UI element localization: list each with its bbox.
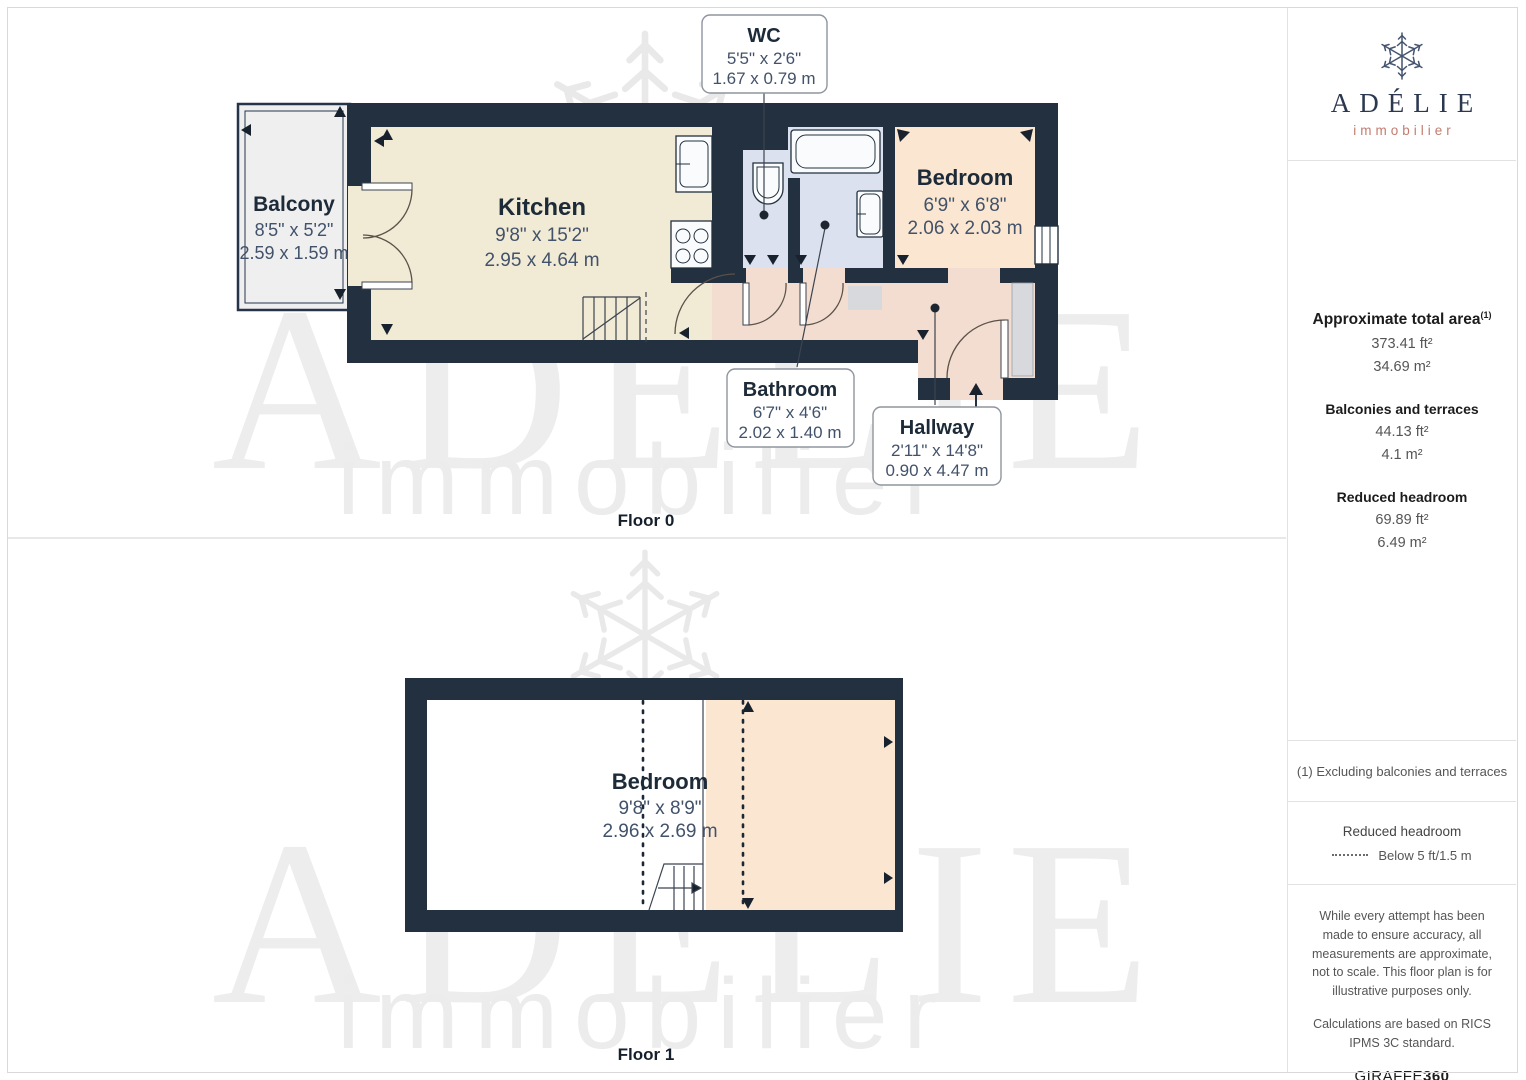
room-metric: 2.02 x 1.40 m xyxy=(738,423,841,442)
room-metric: 2.59 x 1.59 m xyxy=(239,243,348,263)
legend-item: Below 5 ft/1.5 m xyxy=(1378,848,1471,863)
room-metric: 2.06 x 2.03 m xyxy=(907,218,1022,239)
legend-title: Reduced headroom xyxy=(1343,824,1462,839)
bathroom-sink-icon xyxy=(857,191,883,237)
footnote-marker: (1) xyxy=(1480,310,1491,320)
toilet-icon xyxy=(753,163,783,204)
bedroom0-label: Bedroom 6'9" x 6'8" 2.06 x 2.03 m xyxy=(907,165,1022,239)
reduced-headroom-ft: 69.89 ft² xyxy=(1337,512,1468,528)
balconies-ft: 44.13 ft² xyxy=(1325,424,1478,440)
room-imperial: 6'9" x 6'8" xyxy=(923,195,1006,216)
room-imperial: 8'5" x 5'2" xyxy=(255,220,334,240)
disclaimer-text-1: While every attempt has been made to ens… xyxy=(1304,907,1500,1001)
kitchen-sink-icon xyxy=(676,136,712,192)
room-imperial: 5'5" x 2'6" xyxy=(727,49,801,68)
room-name: WC xyxy=(747,25,780,47)
bathtub-icon xyxy=(791,130,880,173)
balconies-title: Balconies and terraces xyxy=(1325,401,1478,417)
kitchen-label: Kitchen 9'8" x 15'2" 2.95 x 4.64 m xyxy=(484,194,599,271)
room-bedroom1-floor xyxy=(706,700,895,910)
footnote: (1) Excluding balconies and terraces xyxy=(1288,740,1516,801)
dashed-line-sample xyxy=(1332,854,1368,856)
floorplan-page: ADÉLIE immobilier ADÉLIE immobilier xyxy=(0,0,1526,1080)
room-metric: 0.90 x 4.47 m xyxy=(885,461,988,480)
disclaimer: While every attempt has been made to ens… xyxy=(1288,884,1516,1072)
brand-tagline: immobilier xyxy=(1349,123,1455,138)
room-name: Bedroom xyxy=(612,769,709,794)
room-metric: 1.67 x 0.79 m xyxy=(712,69,815,88)
legend-row: Below 5 ft/1.5 m xyxy=(1332,848,1471,863)
room-name: Hallway xyxy=(900,417,975,439)
room-metric: 2.96 x 2.69 m xyxy=(602,821,717,842)
room-imperial: 2'11" x 14'8" xyxy=(891,441,983,460)
disclaimer-text-2: Calculations are based on RICS IPMS 3C s… xyxy=(1304,1015,1500,1053)
room-name: Bedroom xyxy=(917,165,1014,190)
room-name: Balcony xyxy=(253,193,335,216)
brand-logo: ADÉLIE immobilier xyxy=(1288,8,1516,160)
floor0-label: Floor 0 xyxy=(618,511,675,530)
legend: Reduced headroom Below 5 ft/1.5 m xyxy=(1288,801,1516,884)
reduced-headroom-title: Reduced headroom xyxy=(1337,489,1468,505)
balcony-label: Balcony 8'5" x 5'2" 2.59 x 1.59 m xyxy=(239,193,348,263)
balconies-group: Balconies and terraces 44.13 ft² 4.1 m² xyxy=(1325,401,1478,463)
floor1-label: Floor 1 xyxy=(618,1045,675,1064)
brand-name: ADÉLIE xyxy=(1322,88,1482,119)
total-area-title: Approximate total area(1) xyxy=(1313,310,1492,329)
area-summary: Approximate total area(1) 373.41 ft² 34.… xyxy=(1288,160,1516,740)
reduced-headroom-m: 6.49 m² xyxy=(1337,535,1468,551)
room-metric: 2.95 x 4.64 m xyxy=(484,250,599,271)
floorplans-svg: ADÉLIE immobilier ADÉLIE immobilier xyxy=(0,0,1286,1080)
balconies-m: 4.1 m² xyxy=(1325,447,1478,463)
room-name: Kitchen xyxy=(498,194,586,221)
room-name: Bathroom xyxy=(743,379,837,401)
shower-mat xyxy=(848,286,882,310)
stove-icon xyxy=(671,221,712,268)
bedroom-window xyxy=(1035,226,1058,264)
info-sidebar: ADÉLIE immobilier Approximate total area… xyxy=(1287,8,1516,1072)
snowflake-icon xyxy=(1377,31,1427,81)
reduced-headroom-group: Reduced headroom 69.89 ft² 6.49 m² xyxy=(1337,489,1468,551)
bedroom1-label: Bedroom 9'8" x 8'9" 2.96 x 2.69 m xyxy=(602,769,717,842)
giraffe360-logo: GIRAFFE360 xyxy=(1304,1066,1500,1080)
room-imperial: 6'7" x 4'6" xyxy=(753,403,827,422)
entry-mat xyxy=(1012,283,1033,376)
room-imperial: 9'8" x 8'9" xyxy=(618,798,701,819)
total-area-ft: 373.41 ft² xyxy=(1313,336,1492,352)
total-area-m: 34.69 m² xyxy=(1313,359,1492,375)
total-area-group: Approximate total area(1) 373.41 ft² 34.… xyxy=(1313,310,1492,375)
room-imperial: 9'8" x 15'2" xyxy=(495,225,589,246)
